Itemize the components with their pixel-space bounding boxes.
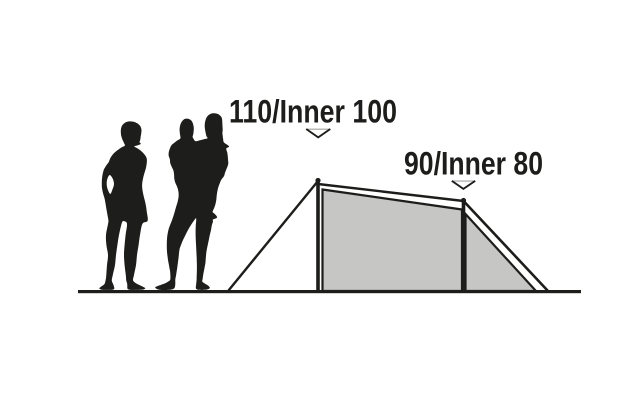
svg-text:110/Inner 100: 110/Inner 100 bbox=[229, 94, 397, 130]
svg-text:90/Inner 80: 90/Inner 80 bbox=[404, 146, 543, 182]
